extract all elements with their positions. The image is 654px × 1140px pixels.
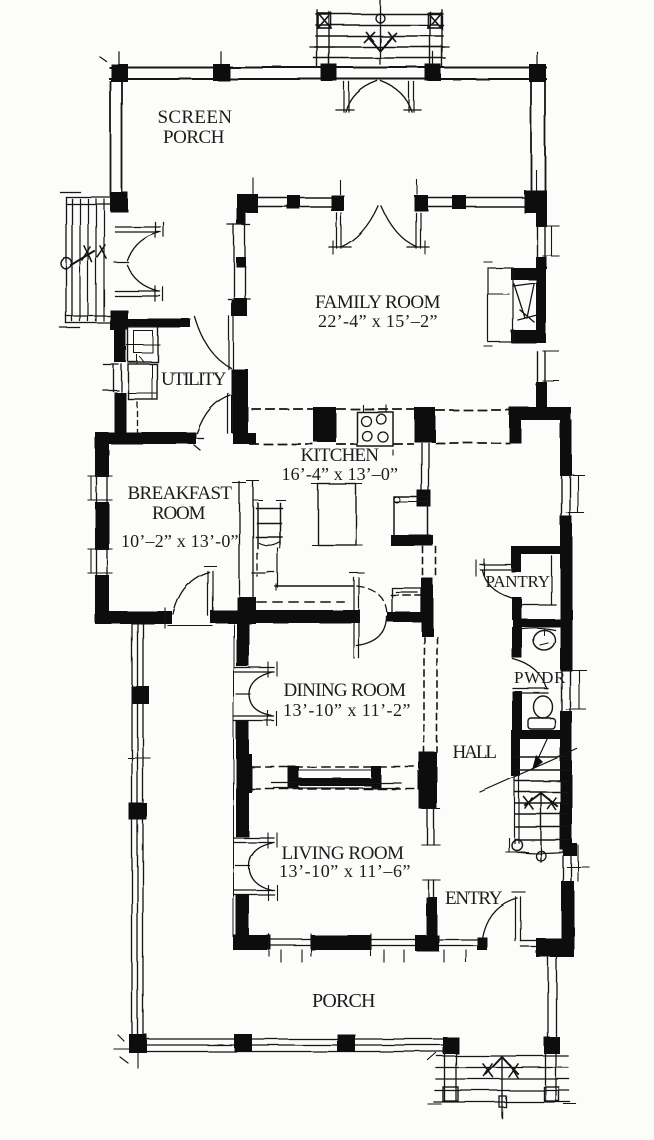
svg-text:PWDR: PWDR [514, 668, 566, 687]
svg-text:HALL: HALL [453, 742, 498, 763]
svg-text:PORCH: PORCH [312, 990, 376, 1012]
svg-text:UTILITY: UTILITY [161, 369, 227, 390]
svg-text:ROOM: ROOM [152, 503, 206, 524]
svg-text:FAMILY ROOM: FAMILY ROOM [315, 292, 441, 313]
svg-text:DINING ROOM: DINING ROOM [284, 680, 407, 701]
svg-text:13’-10” x 11’–6”: 13’-10” x 11’–6” [279, 861, 411, 881]
svg-text:10’–2” x 13’-0”: 10’–2” x 13’-0” [121, 531, 239, 551]
svg-text:PORCH: PORCH [163, 127, 225, 148]
svg-text:ENTRY: ENTRY [445, 888, 503, 909]
svg-text:PANTRY: PANTRY [486, 572, 551, 591]
svg-text:13’-10” x 11’-2”: 13’-10” x 11’-2” [283, 700, 411, 720]
svg-text:KITCHEN: KITCHEN [301, 445, 380, 466]
svg-text:BREAKFAST: BREAKFAST [128, 483, 233, 504]
svg-text:16’-4” x 13’–0”: 16’-4” x 13’–0” [282, 464, 399, 484]
svg-text:SCREEN: SCREEN [158, 107, 233, 128]
svg-text:22’-4” x 15’–2”: 22’-4” x 15’–2” [318, 311, 438, 331]
